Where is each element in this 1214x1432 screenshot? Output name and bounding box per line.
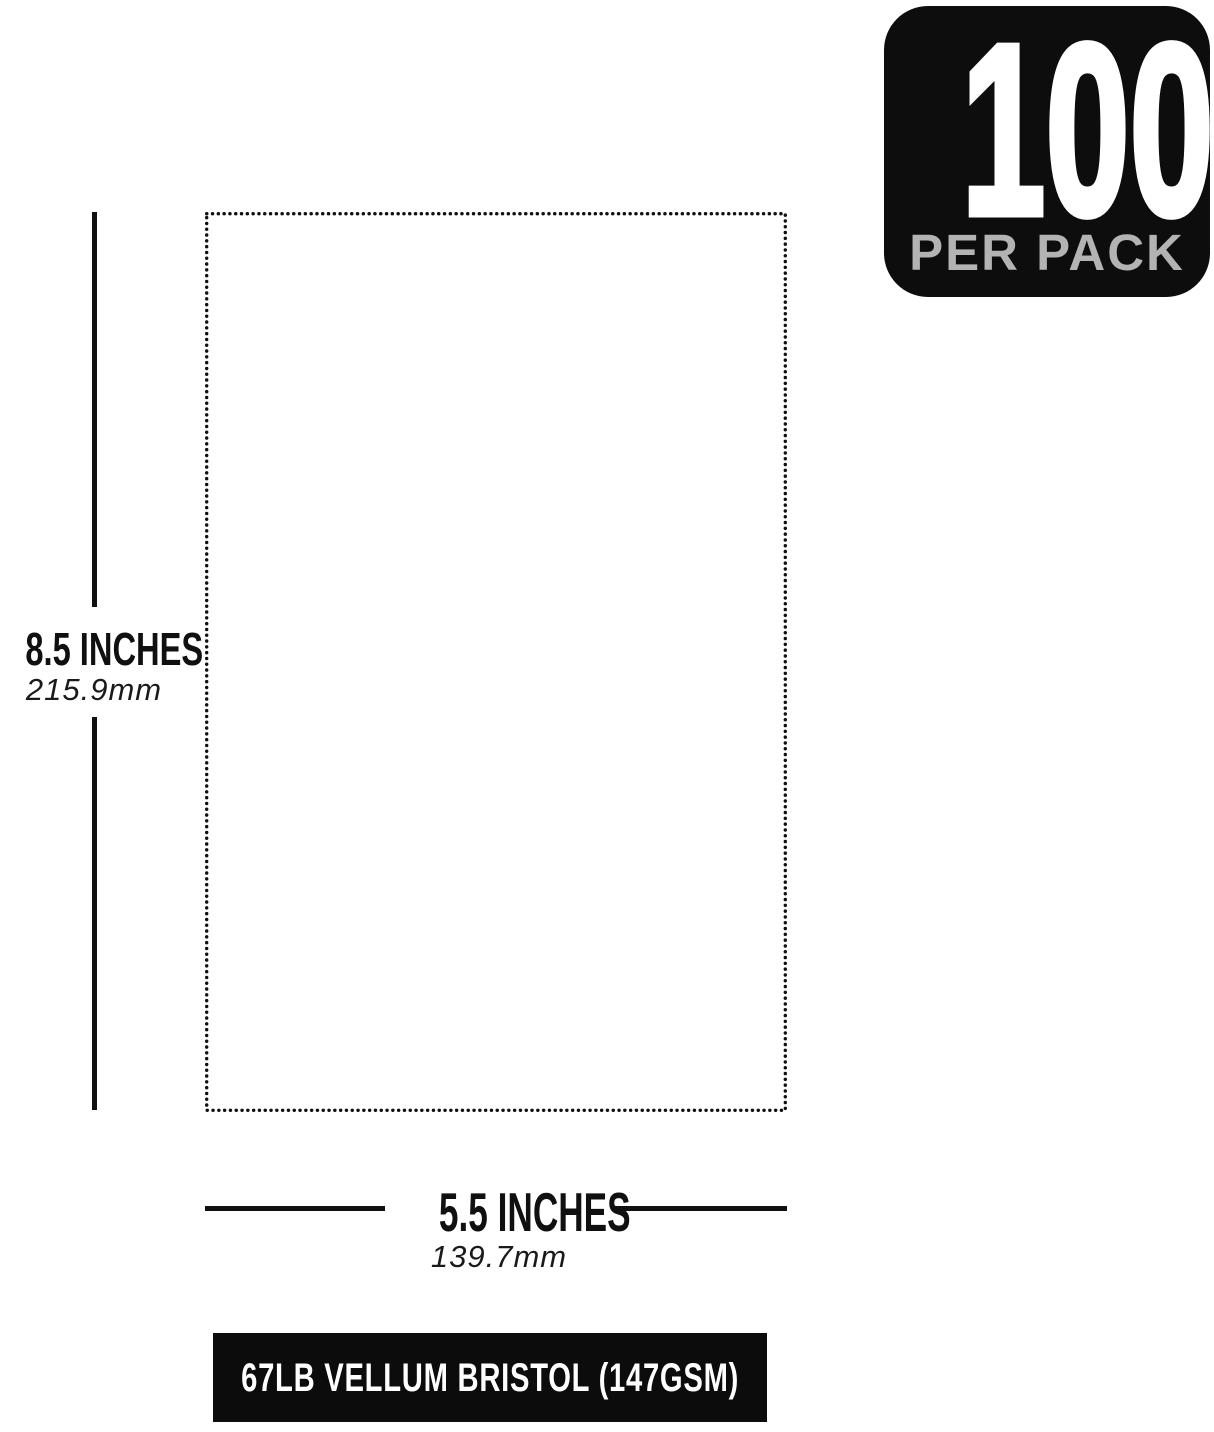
paper-weight-bar: 67LB VELLUM BRISTOL (147GSM) [213, 1333, 767, 1422]
pack-count: 100 [884, 8, 1210, 252]
pack-count-value: 100 [961, 8, 1213, 252]
pack-count-badge: 100 PER PACK [884, 6, 1210, 297]
pack-count-label: PER PACK [884, 227, 1210, 278]
width-dimension-label: 5.5 INCHES 139.7mm [385, 1180, 613, 1272]
width-mm: 139.7mm [385, 1241, 613, 1272]
paper-weight-text: 67LB VELLUM BRISTOL (147GSM) [149, 1358, 831, 1398]
height-inches: 8.5 INCHES [0, 626, 199, 672]
product-dimension-diagram: 100 PER PACK 8.5 INCHES 215.9mm 5.5 INCH… [0, 0, 1214, 1432]
dotted-rectangle-icon [207, 214, 786, 1111]
width-inches: 5.5 INCHES [385, 1185, 613, 1240]
height-mm: 215.9mm [0, 674, 199, 705]
paper-sheet-outline [205, 212, 787, 1112]
height-dimension-label: 8.5 INCHES 215.9mm [0, 607, 199, 717]
